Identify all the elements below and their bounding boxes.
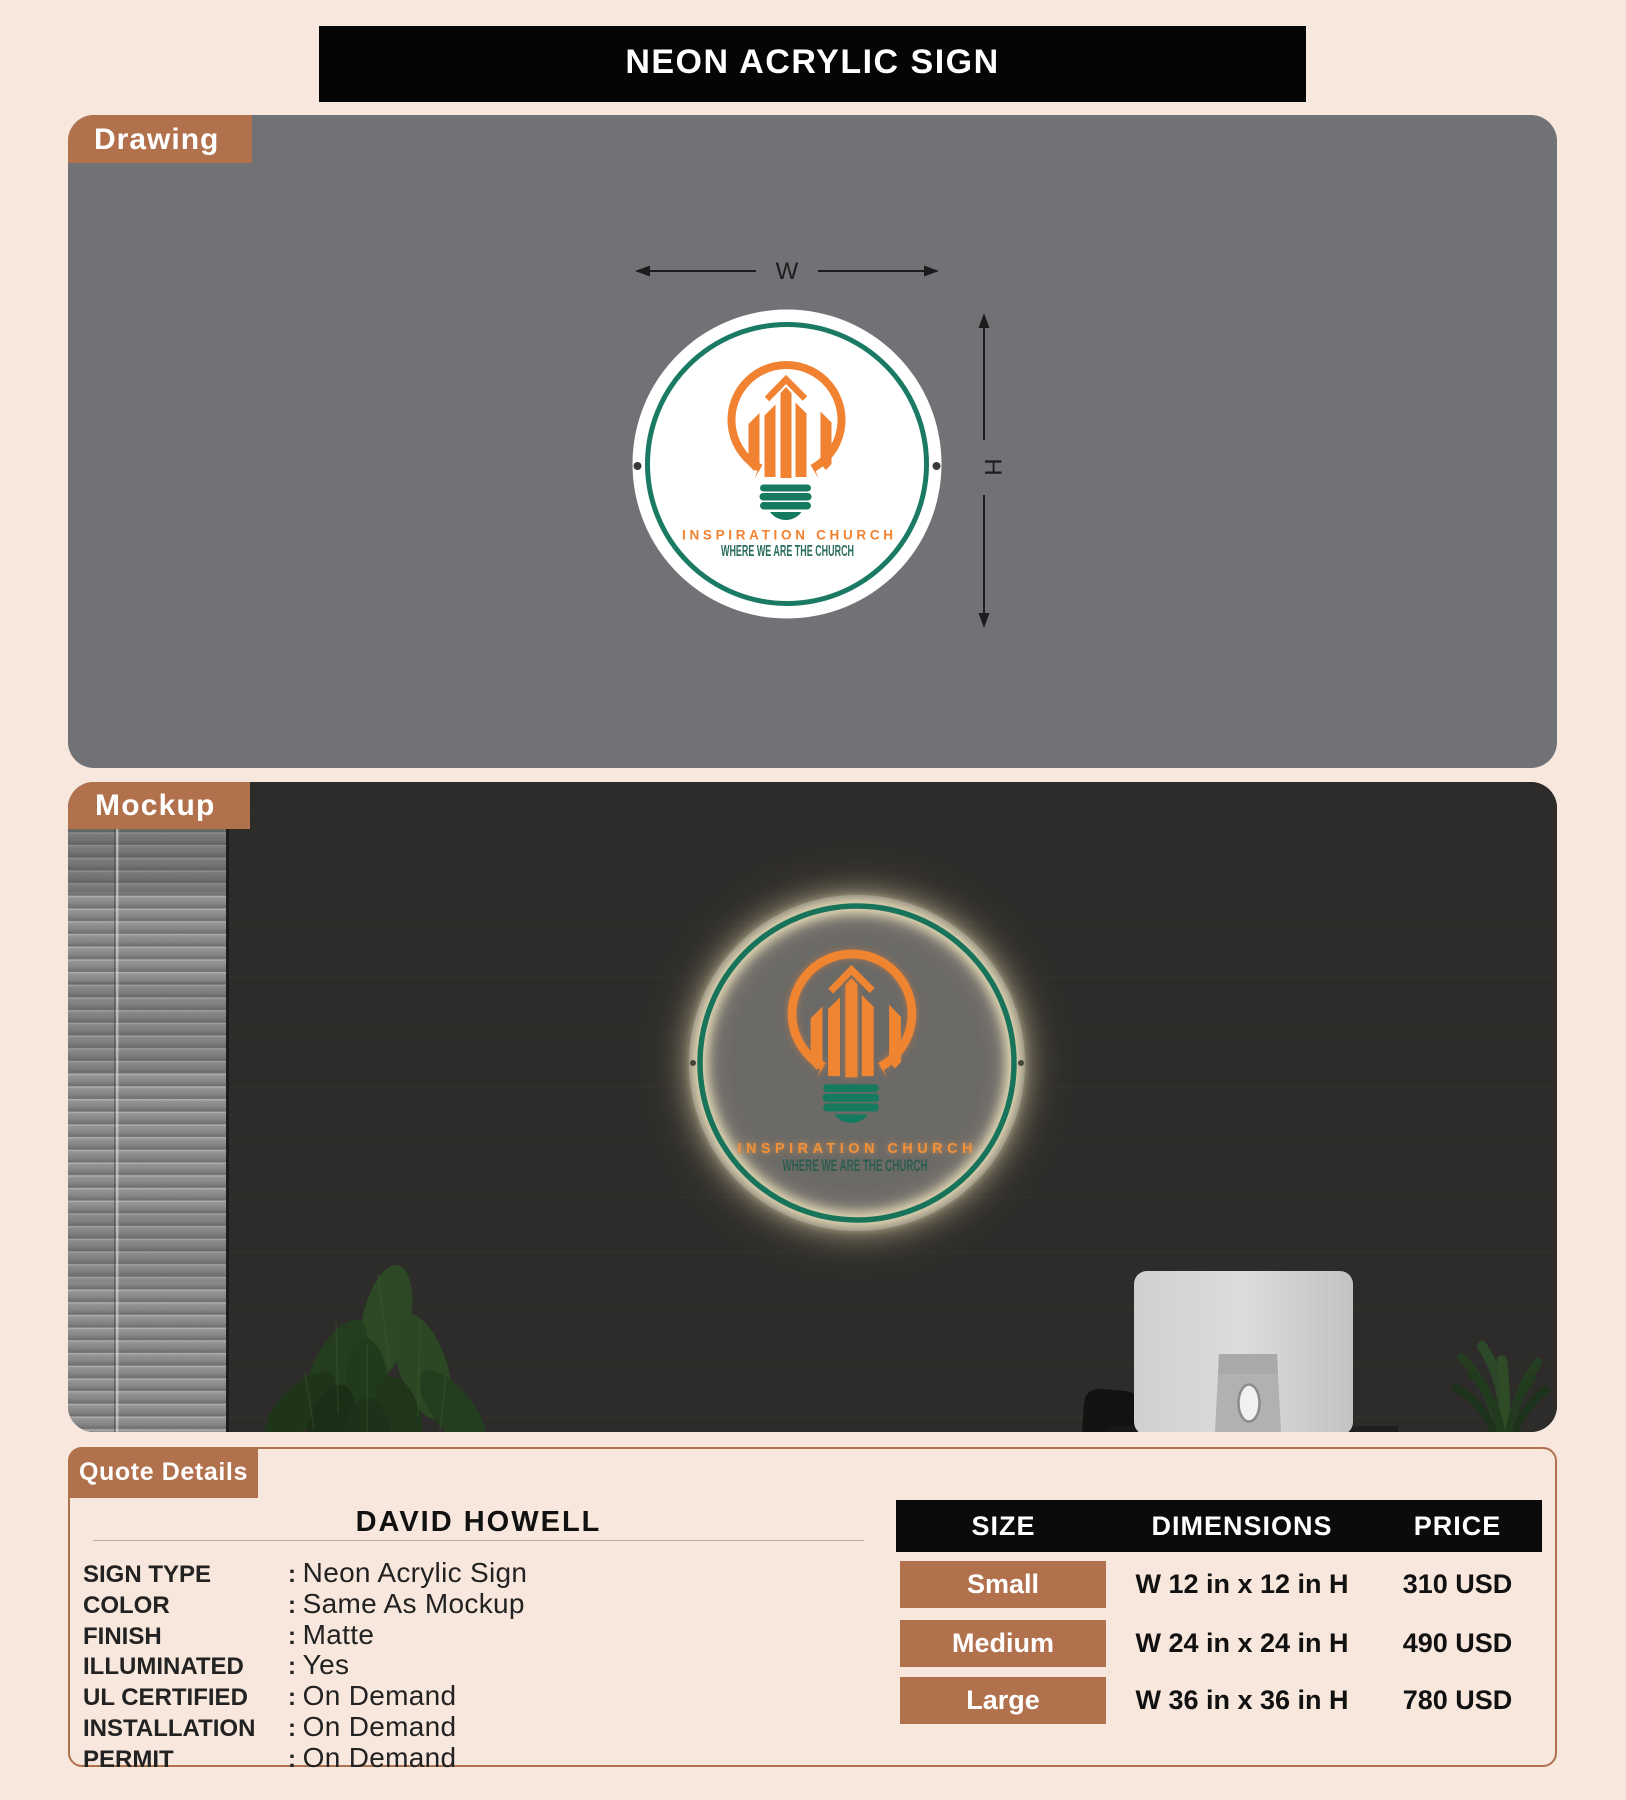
svg-text:H: H bbox=[979, 458, 1006, 475]
svg-text:WHERE WE ARE THE CHURCH: WHERE WE ARE THE CHURCH bbox=[783, 1156, 928, 1175]
svg-text:W: W bbox=[776, 258, 799, 285]
svg-text:WHERE WE ARE THE CHURCH: WHERE WE ARE THE CHURCH bbox=[721, 543, 854, 560]
